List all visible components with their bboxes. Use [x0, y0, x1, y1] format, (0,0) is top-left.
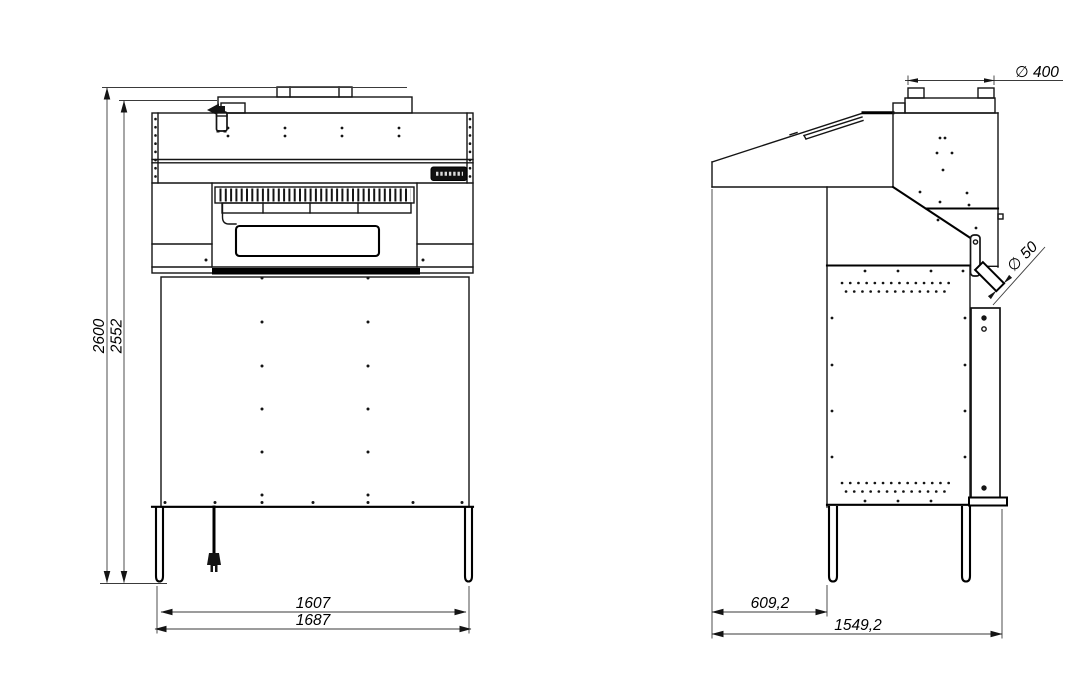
dim-duct-diameter: ∅ 400 [905, 64, 1063, 85]
power-cable [207, 507, 221, 572]
control-strip [222, 203, 411, 213]
dimensions: 2600 2552 1607 1687 ∅ 400 [91, 64, 1063, 639]
perforations-top [842, 283, 956, 292]
drain-valve [207, 103, 245, 133]
duct-connector-front [277, 87, 352, 97]
panel-edge-dots [831, 270, 967, 503]
back-panel [827, 187, 970, 507]
dim-depth-overall: 1549,2 [712, 617, 1002, 634]
dim-label-width-inner: 1607 [296, 595, 332, 612]
dim-height-total: 2600 [91, 88, 407, 583]
lower-panel [152, 277, 473, 508]
inspection-window [236, 226, 379, 256]
fan-housing [893, 103, 1003, 267]
panel-dots [164, 277, 464, 505]
plenum-box [218, 97, 412, 113]
leg-front-left [156, 507, 163, 582]
damper-strip [790, 117, 863, 139]
cabinet-body [152, 113, 473, 273]
base-plate [969, 498, 1007, 506]
side-view [712, 88, 1007, 582]
dim-outlet-diameter: ∅ 50 [988, 238, 1045, 305]
duct-connector-side [905, 88, 995, 113]
dim-width-inner: 1607 [161, 595, 466, 612]
leg-side-rear [962, 507, 970, 582]
worktop-bar [212, 268, 420, 275]
brand-plate [431, 167, 467, 181]
dim-label-depth-overall: 1549,2 [834, 617, 882, 634]
dim-depth-front: 609,2 [712, 595, 827, 612]
technical-drawing: 2600 2552 1607 1687 ∅ 400 [0, 0, 1079, 681]
dim-width-overall: 1687 [155, 612, 471, 629]
supply-pipe [223, 204, 237, 224]
baffle-plate [893, 187, 972, 239]
front-view [152, 87, 473, 582]
dim-label-height-total: 2600 [91, 318, 108, 354]
leg-front-right [465, 507, 472, 582]
perforations-bottom [842, 483, 956, 492]
leg-side-front [829, 507, 837, 582]
housing-dots [919, 137, 978, 230]
hood-canopy [712, 113, 893, 187]
dim-label-depth-front: 609,2 [751, 595, 790, 612]
dim-label-width-overall: 1687 [296, 612, 332, 629]
mounting-rail [971, 308, 1000, 498]
power-plug-icon [207, 553, 221, 572]
dim-label-height-body: 2552 [109, 318, 126, 354]
louver-grille [215, 187, 414, 203]
dim-label-duct-diameter: ∅ 400 [1015, 64, 1059, 81]
rivet-dots [227, 127, 401, 138]
